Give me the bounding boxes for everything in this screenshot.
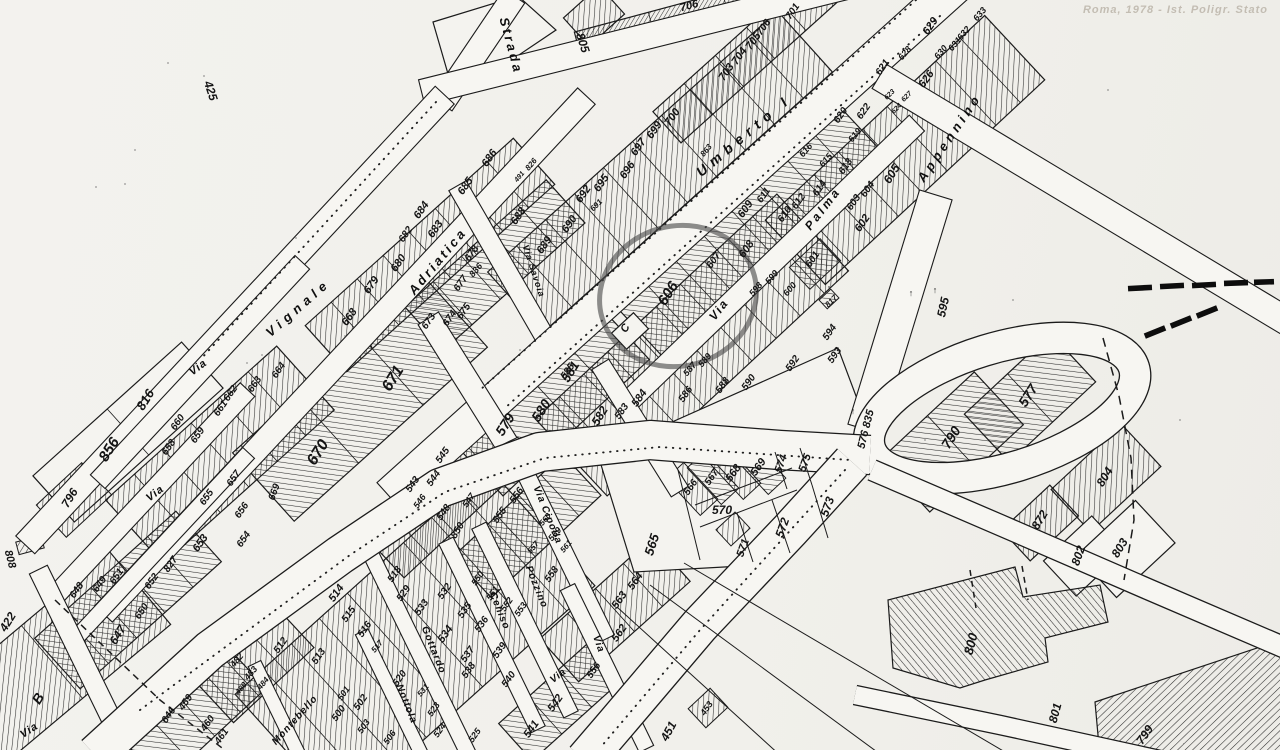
boundary-dash-mark	[1224, 280, 1248, 286]
scan-speck	[246, 362, 248, 364]
parcel-label-808: 808	[2, 549, 19, 571]
parcel-label-595: 595	[934, 296, 952, 319]
scan-speck	[167, 62, 169, 64]
map-polygon	[1095, 638, 1280, 750]
boundary-dash-mark	[1196, 305, 1218, 318]
parcel-label-594: 594	[821, 322, 840, 342]
boundary-dash-mark	[1144, 325, 1166, 338]
boundary-dash-mark	[1170, 315, 1192, 328]
parcel-label-451: 451	[657, 719, 679, 744]
scan-speck	[124, 183, 126, 185]
boundary-dash-mark	[1254, 279, 1274, 285]
parcel-label-622: 622	[855, 101, 874, 121]
survey-arrow-icon: ↑	[933, 285, 938, 295]
scan-speck	[1107, 89, 1109, 91]
survey-arrow-icon: ↑	[851, 406, 856, 416]
map-viewport: ↑↑↑↑ 42580570670170370470570670069969769…	[0, 0, 1280, 750]
parcel-label-801: 801	[1046, 701, 1065, 724]
scan-speck	[344, 335, 346, 337]
scan-speck	[924, 439, 926, 441]
parcel-label-656: 656	[233, 500, 252, 520]
scan-speck	[203, 75, 205, 77]
parcel-label-425: 425	[201, 78, 221, 103]
survey-arrow-icon: ↑	[827, 283, 832, 293]
scan-speck	[1179, 419, 1181, 421]
print-credit: Roma, 1978 - Ist. Poligr. Stato	[1083, 4, 1268, 16]
cadastral-map: ↑↑↑↑ 42580570670170370470570670069969769…	[0, 0, 1280, 750]
boundary-dash-mark	[1128, 285, 1152, 292]
scan-speck	[95, 186, 97, 188]
parcel-label-525: 525	[466, 725, 483, 744]
parcel-label-654: 654	[235, 529, 254, 549]
scan-speck	[880, 200, 882, 202]
scan-speck	[295, 237, 297, 239]
boundary-dash-mark	[1160, 283, 1184, 290]
survey-arrow-icon: ↑	[909, 288, 914, 298]
scan-speck	[134, 149, 136, 151]
scan-speck	[1012, 299, 1014, 301]
scan-speck	[519, 349, 521, 351]
scan-speck	[261, 354, 263, 356]
parcel-label-570: 570	[712, 503, 732, 517]
